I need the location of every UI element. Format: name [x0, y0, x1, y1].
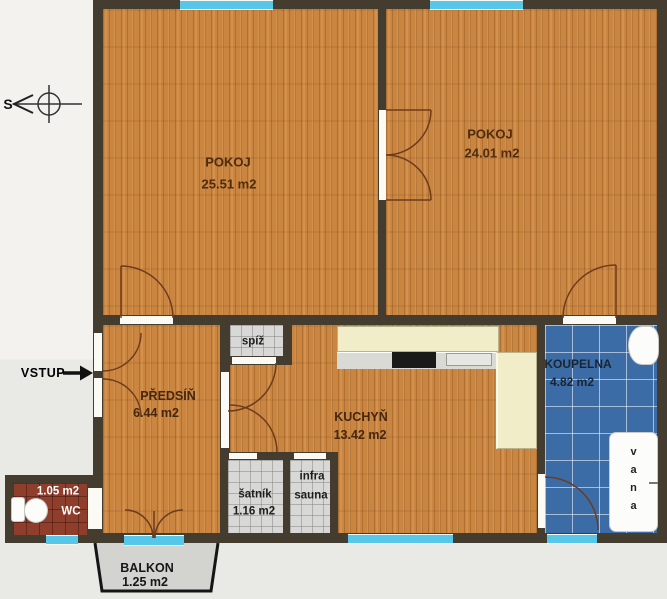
floor-plan: vana POKOJ 25.51 m2 POKOJ 24.01 m2 PŘEDS… [0, 0, 667, 599]
bathtub-label: vana [628, 446, 640, 518]
window-pokoj1 [180, 0, 273, 10]
room-kuchyn-label: KUCHYŇ [334, 411, 387, 424]
room-kuchyn-area: 13.42 m2 [334, 429, 387, 442]
room-pokoj1-label: POKOJ [205, 156, 251, 169]
entrance-label: VSTUP [21, 367, 65, 380]
kitchen-counter-top [337, 326, 499, 352]
room-pokoj1-area: 25.51 m2 [202, 178, 257, 191]
balcony-door-glazing [124, 535, 184, 546]
koupelna-door-opening [538, 474, 545, 528]
room-infra-sauna-line2: sauna [294, 490, 327, 502]
window-kuchyn [348, 534, 453, 544]
entrance-door-opening-upper [94, 333, 102, 371]
compass-icon [13, 85, 82, 123]
room-predsin-floor [103, 325, 220, 533]
room-balkon-label: BALKON [120, 562, 173, 575]
kitchen-counter-right [496, 352, 537, 449]
entrance-arrow-icon [63, 366, 93, 381]
room-wc-label: WC [61, 506, 80, 518]
room-predsin-label: PŘEDSÍŇ [140, 390, 196, 403]
compass-north-label: S [3, 97, 12, 111]
room-satnik-label: šatník [238, 489, 271, 501]
wc-door-opening [88, 488, 102, 529]
satnik-door-opening [229, 453, 257, 459]
room-spiz-label: spíž [242, 336, 264, 348]
french-door-opening [379, 110, 386, 200]
room-koupelna-area: 4.82 m2 [550, 376, 594, 388]
room-balkon-area: 1.25 m2 [122, 576, 168, 589]
window-pokoj2 [430, 0, 523, 10]
room-koupelna-label: KOUPELNA [544, 358, 611, 370]
pokoj1-door-opening [120, 316, 173, 324]
stove [392, 352, 436, 368]
spiz-door-opening [232, 357, 276, 364]
kitchen-sink [446, 353, 492, 366]
room-wc-area: 1.05 m2 [37, 486, 79, 498]
pokoj2-door-opening [563, 316, 616, 324]
room-predsin-area: 6.44 m2 [133, 407, 179, 420]
room-satnik-area: 1.16 m2 [233, 506, 275, 518]
room-pokoj2-floor [386, 9, 657, 315]
bathroom-sink [628, 326, 659, 365]
bathtub-tap [649, 482, 658, 484]
sauna-door-opening [294, 453, 326, 459]
predsin-kuchyn-door-opening [221, 372, 229, 448]
toilet-bowl [24, 498, 48, 523]
room-infra-sauna-line1: infra [300, 471, 325, 483]
window-wc [46, 535, 78, 545]
window-koupelna [547, 534, 597, 544]
room-pokoj2-area: 24.01 m2 [465, 147, 520, 160]
room-pokoj2-label: POKOJ [467, 128, 513, 141]
entrance-door-opening-lower [94, 378, 102, 417]
toilet-cistern [11, 497, 25, 522]
